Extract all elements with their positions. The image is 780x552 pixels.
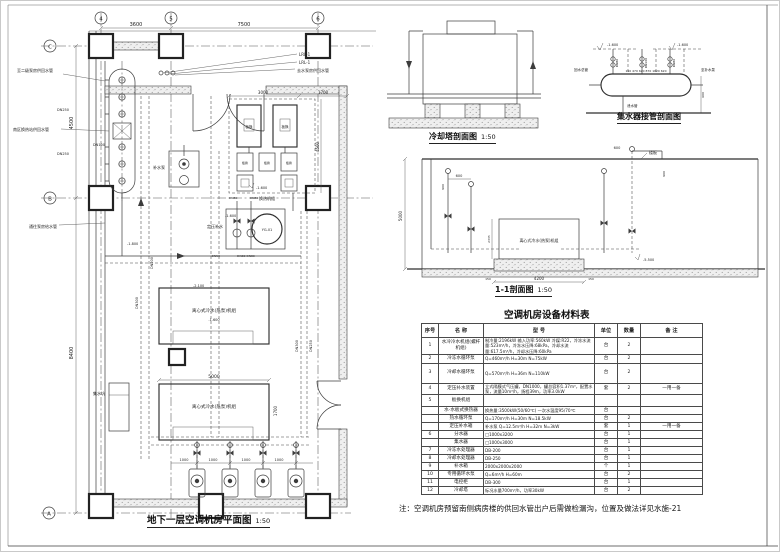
section-1-1: 5000 楼板 离心式冷水(热泵)机组 4200 150 150 600 900… bbox=[398, 146, 765, 284]
double-door-right bbox=[317, 381, 341, 429]
hx-label-2: 板换 bbox=[282, 124, 290, 129]
collector-title: 集水器接管剖面图 bbox=[617, 111, 681, 124]
cell-remark bbox=[641, 431, 703, 439]
cell-no: 1 bbox=[422, 338, 439, 355]
table-row: 集水器 □1000x3000 台 1 bbox=[422, 439, 703, 447]
cell-qty: 2 bbox=[618, 338, 641, 355]
table-row: 5 板换机组 bbox=[422, 395, 703, 407]
cell-unit: 台 bbox=[595, 447, 618, 455]
cell-model: 换热量:3500kW(50/60℃) 一次水温度95/70℃ bbox=[484, 407, 595, 415]
cell-qty: 1 bbox=[618, 463, 641, 471]
collector-right-label: 至补水泵 bbox=[701, 67, 715, 72]
table-row: 7 冷冻水处理器 DB-200 台 1 bbox=[422, 447, 703, 455]
collector-dim-row: 150 470 620 870 1620 620 bbox=[625, 69, 666, 73]
axis-bubble-5: 5 bbox=[169, 17, 173, 23]
sump-equipment: 集水坑 bbox=[93, 383, 129, 431]
col-header-qty: 数量 bbox=[618, 324, 641, 338]
elevation-c: -1.800 bbox=[127, 242, 138, 246]
cell-no bbox=[422, 423, 439, 431]
pump-spacing-dim-2: 1000 bbox=[242, 458, 251, 462]
slab-label: 楼板 bbox=[649, 149, 657, 155]
section-dim-4200: 4200 bbox=[534, 276, 545, 281]
cell-model: □1000x3200 bbox=[484, 431, 595, 439]
dn100-label: DN100 bbox=[93, 143, 105, 147]
cell-qty: 2 bbox=[618, 354, 641, 363]
cell-unit: 台 bbox=[595, 338, 618, 355]
cell-model: 立式隔膜式气压罐，DN1000，罐总容积1.37m³，配置水泵，流量10m³/h… bbox=[484, 383, 595, 395]
plan-title-scale: 1:50 bbox=[256, 517, 271, 525]
cell-model: DB-200 bbox=[484, 447, 595, 455]
cell-name: 定压补水箱 bbox=[439, 423, 484, 431]
cell-unit: 台 bbox=[595, 455, 618, 463]
cell-remark: 一用一备 bbox=[641, 423, 703, 431]
cell-unit: 台 bbox=[595, 415, 618, 423]
cell-name: 冷却塔 bbox=[439, 487, 484, 495]
cell-model: Q=570m³/h H=36m N=110kW bbox=[484, 363, 595, 383]
table-row: 12 冷却塔 标况水量700m³/h，功率30kW 台 2 bbox=[422, 487, 703, 495]
cell-name: 冷冻水循环泵 bbox=[439, 354, 484, 363]
cell-no: 6 bbox=[422, 431, 439, 439]
section-dim-150-left: 150 bbox=[485, 277, 491, 281]
cell-remark bbox=[641, 415, 703, 423]
collector-title-text: 集水器接管剖面图 bbox=[617, 112, 681, 121]
elevation-d: -2.100 bbox=[193, 284, 204, 288]
cell-remark: 一用一备 bbox=[641, 383, 703, 395]
plan-title-text: 地下一层空调机房平面图 bbox=[147, 515, 252, 526]
col-header-name: 名 称 bbox=[439, 324, 484, 338]
walls bbox=[89, 31, 376, 513]
dim-8400: 8400 bbox=[69, 347, 75, 360]
pump-spacing-dim-0: 1000 bbox=[180, 458, 189, 462]
cell-model: Q=6m³/h H=60m bbox=[484, 471, 595, 479]
cell-name: 专用循环水泵 bbox=[439, 471, 484, 479]
table-header-row: 序号 名 称 型 号 单位 数量 备 注 bbox=[422, 324, 703, 338]
section-1-1-title-scale: 1:50 bbox=[537, 286, 552, 294]
cell-no: 9 bbox=[422, 463, 439, 471]
pump-spacing-dim-3: 1000 bbox=[275, 458, 284, 462]
cell-qty: 2 bbox=[618, 471, 641, 479]
cell-no: 8 bbox=[422, 455, 439, 463]
cell-name: 定压补水装置 bbox=[439, 383, 484, 395]
table-row: 4 定压补水装置 立式隔膜式气压罐，DN1000，罐总容积1.37m³，配置水泵… bbox=[422, 383, 703, 395]
plan-title: 地下一层空调机房平面图1:50 bbox=[147, 512, 270, 528]
pipe-tag-lrl2: LRL-1 bbox=[299, 60, 311, 65]
cell-model: DB-250 bbox=[484, 455, 595, 463]
cell-name: 冷却水处理器 bbox=[439, 455, 484, 463]
section-elevation: -5.500 bbox=[643, 258, 654, 262]
cell-remark bbox=[641, 354, 703, 363]
col-header-remark: 备 注 bbox=[641, 324, 703, 338]
leader-label-left-mid: 南区换热站供回水管 bbox=[13, 126, 49, 132]
cell-no bbox=[422, 415, 439, 423]
dim-7500: 7500 bbox=[238, 22, 251, 28]
chiller-2: 离心式冷水(热泵)机组 5000 1700 bbox=[157, 374, 278, 440]
drawing-note: 注：空调机房预留南侧病房楼的供回水管出户后需做检漏沟，位置及做法详见水施-21 bbox=[399, 503, 681, 514]
cell-remark bbox=[641, 487, 703, 495]
section-dim-900-left: 900 bbox=[441, 184, 445, 190]
cell-qty: 2 bbox=[618, 415, 641, 423]
axis-bubble-6: 6 bbox=[316, 17, 320, 23]
cell-name: 电控柜 bbox=[439, 479, 484, 487]
cell-remark bbox=[641, 407, 703, 415]
table-row: 10 专用循环水泵 Q=6m³/h H=60m 台 2 bbox=[422, 471, 703, 479]
equipment-table: 序号 名 称 型 号 单位 数量 备 注 1 水冷冷水机组(螺杆机组) 制冷量:… bbox=[421, 323, 702, 495]
dim-4500-right: 4500 bbox=[315, 141, 320, 152]
section-dim-900-right: 900 bbox=[662, 171, 666, 177]
cooling-tower-title-text: 冷却塔剖面图 bbox=[429, 132, 477, 141]
section-dim-2335: 2335 bbox=[487, 235, 491, 243]
cell-unit: 台 bbox=[595, 354, 618, 363]
cell-qty: 2 bbox=[618, 363, 641, 383]
pump-row: 1000 1000 1000 1000 bbox=[171, 441, 313, 497]
cell-model: Q=170m³/h H=30m N=18.5kW bbox=[484, 415, 595, 423]
section-dim-150-right: 150 bbox=[588, 277, 594, 281]
section-1-1-title: 1-1剖面图1:50 bbox=[495, 284, 552, 297]
table-row: 水-水板式换热器 换热量:3500kW(50/60℃) 一次水温度95/70℃ … bbox=[422, 407, 703, 415]
sump-label: 集水坑 bbox=[93, 390, 105, 396]
cell-qty: 2 bbox=[618, 383, 641, 395]
table-body: 1 水冷冷水机组(螺杆机组) 制冷量:2196kW 输入功率:560kW 冷媒:… bbox=[422, 338, 703, 495]
double-door-top bbox=[193, 94, 264, 131]
cell-name: 冷冻水处理器 bbox=[439, 447, 484, 455]
cell-no: 11 bbox=[422, 479, 439, 487]
cell-qty bbox=[618, 395, 641, 407]
top-risers: LRL-1 LRL-1 去水泵房供回水管 bbox=[159, 52, 329, 75]
pump-station-label: 补水泵 bbox=[153, 164, 165, 170]
cooling-tower-title: 冷却塔剖面图1:50 bbox=[429, 131, 496, 144]
section-dim-600-left: 600 bbox=[456, 174, 463, 178]
collector-dim-600: 600 bbox=[701, 92, 705, 98]
cell-qty: 1 bbox=[618, 479, 641, 487]
cooling-tower-section bbox=[387, 21, 541, 128]
leader-label-left-top: 至二级泵房供回水管 bbox=[17, 67, 53, 73]
collector-left-label: 回水总管 bbox=[574, 67, 588, 72]
cell-unit: 个 bbox=[595, 463, 618, 471]
cell-remark bbox=[641, 338, 703, 355]
dim-3600: 3600 bbox=[130, 22, 143, 28]
cell-model: 补水泵 Q=12.5m³/h H=32m N=3kW bbox=[484, 423, 595, 431]
cell-model: 2000x2000x2000 bbox=[484, 463, 595, 471]
cell-model: Q=460m³/h H=30m N=75kW bbox=[484, 354, 595, 363]
chiller-2-label: 离心式冷水(热泵)机组 bbox=[192, 403, 237, 410]
cell-remark bbox=[641, 395, 703, 407]
cell-remark bbox=[641, 363, 703, 383]
pipe-tag-lrl1: LRL-1 bbox=[299, 52, 311, 57]
cell-remark bbox=[641, 463, 703, 471]
cooling-tower-title-scale: 1:50 bbox=[481, 133, 496, 141]
cell-model bbox=[484, 395, 595, 407]
cell-unit bbox=[595, 395, 618, 407]
cell-name: 分水器 bbox=[439, 431, 484, 439]
collector-drain-label: 泄水管 bbox=[627, 103, 638, 108]
table-row: 9 补水箱 2000x2000x2000 个 1 bbox=[422, 463, 703, 471]
leader-label-left-bottom: 通往泵房给水管 bbox=[29, 223, 57, 229]
pump-station: 补水泵 bbox=[153, 145, 199, 187]
dn250-label-2: DN250 bbox=[57, 152, 69, 156]
collector-section: -1.600 -1.600 DN80 DN100 DN80 回水总管 至补水泵 … bbox=[574, 43, 715, 113]
cell-model: □1000x3000 bbox=[484, 439, 595, 447]
col-header-unit: 单位 bbox=[595, 324, 618, 338]
cell-unit: 台 bbox=[595, 363, 618, 383]
cell-qty bbox=[618, 407, 641, 415]
cell-no: 2 bbox=[422, 354, 439, 363]
dn80-label-1: DN80 bbox=[229, 196, 237, 200]
section-dim-600-right: 600 bbox=[614, 146, 621, 150]
leader-label-top-right: 去水泵房供回水管 bbox=[297, 67, 329, 73]
collector-elevation-left: -1.600 bbox=[607, 43, 618, 47]
elevation-a: -1.600 bbox=[225, 214, 236, 218]
axis-bubble-a: A bbox=[47, 512, 51, 518]
axis-bubble-c: C bbox=[48, 45, 52, 51]
dim-3000: 3000 bbox=[258, 90, 269, 95]
cell-unit: 台 bbox=[595, 487, 618, 495]
cell-name: 冷却水循环泵 bbox=[439, 363, 484, 383]
cell-qty: 1 bbox=[618, 455, 641, 463]
table-row: 定压补水箱 补水泵 Q=12.5m³/h H=32m N=3kW 套 1 一用一… bbox=[422, 423, 703, 431]
floor-plan: 4 5 6 C B A 3600 7500 4500 8400 bbox=[13, 12, 376, 519]
chiller-1: 离心式冷水(热泵)机组 -1.600 bbox=[159, 288, 269, 344]
table-row: 11 电控柜 DB-300 台 1 bbox=[422, 479, 703, 487]
hx-unit-label: 换热机组 bbox=[259, 195, 275, 201]
cell-no: 7 bbox=[422, 447, 439, 455]
section-machine-label: 离心式冷水(热泵)机组 bbox=[519, 237, 558, 243]
cell-unit: 套 bbox=[595, 383, 618, 395]
section-dim-5000: 5000 bbox=[398, 210, 403, 221]
dim-1700-top: 1700 bbox=[318, 90, 329, 95]
cell-unit: 台 bbox=[595, 471, 618, 479]
dim-4500: 4500 bbox=[69, 117, 75, 130]
pump-spacing-dim-1: 1000 bbox=[209, 458, 218, 462]
piping: DN300 DN200 DN300 DN250 -1.600 -1.800 -2… bbox=[105, 96, 313, 469]
dn300-label-1: DN300 bbox=[135, 297, 139, 309]
table-row: 6 分水器 □1000x3200 台 1 bbox=[422, 431, 703, 439]
cell-remark bbox=[641, 471, 703, 479]
cell-no: 10 bbox=[422, 471, 439, 479]
drawing-sheet: 4 5 6 C B A 3600 7500 4500 8400 bbox=[0, 0, 780, 552]
cell-remark bbox=[641, 439, 703, 447]
platform-elevation: -1.600 bbox=[256, 186, 267, 190]
dim-1700-right: 1700 bbox=[273, 405, 278, 416]
equipment-table-title: 空调机房设备材料表 bbox=[504, 307, 590, 321]
cell-qty: 1 bbox=[618, 447, 641, 455]
hx-label-3: 板换 bbox=[242, 160, 248, 165]
dim-5000: 5000 bbox=[208, 374, 220, 380]
cell-no: 4 bbox=[422, 383, 439, 395]
cell-name: 板换机组 bbox=[439, 395, 484, 407]
cell-no: 5 bbox=[422, 395, 439, 407]
dn300-label-2: DN300 bbox=[295, 340, 299, 352]
cell-qty: 1 bbox=[618, 439, 641, 447]
table-row: 3 冷却水循环泵 Q=570m³/h H=36m N=110kW 台 2 bbox=[422, 363, 703, 383]
cell-model: DB-300 bbox=[484, 479, 595, 487]
dn250-label-3: DN250 bbox=[309, 340, 313, 352]
dn200-label: DN200 bbox=[150, 257, 154, 269]
cell-no bbox=[422, 439, 439, 447]
hx-label-4: 板换 bbox=[264, 160, 270, 165]
table-row: 8 冷却水处理器 DB-250 台 1 bbox=[422, 455, 703, 463]
dn250-label-1: DN250 bbox=[57, 108, 69, 112]
dn80-label-2: DN80 bbox=[250, 196, 258, 200]
hx-label-1: 板换 bbox=[246, 124, 253, 129]
collector-dn-2: DN100 bbox=[644, 58, 648, 68]
table-row: 热水循环泵 Q=170m³/h H=30m N=18.5kW 台 2 bbox=[422, 415, 703, 423]
cell-unit: 套 bbox=[595, 423, 618, 431]
cell-remark bbox=[641, 455, 703, 463]
cell-unit: 台 bbox=[595, 439, 618, 447]
pressure-tank-group: YG-01 DN80 DN80 DN80 DN80 DN50 定压补水 bbox=[207, 196, 285, 258]
cell-model: 标况水量700m³/h，功率30kW bbox=[484, 487, 595, 495]
cell-unit: 台 bbox=[595, 479, 618, 487]
hx-label-5: 板换 bbox=[286, 160, 292, 165]
cell-qty: 1 bbox=[618, 423, 641, 431]
table-row: 2 冷冻水循环泵 Q=460m³/h H=30m N=75kW 台 2 bbox=[422, 354, 703, 363]
cell-unit: 台 bbox=[595, 407, 618, 415]
pressure-tank-label: 定压补水 bbox=[207, 223, 223, 229]
cell-no: 12 bbox=[422, 487, 439, 495]
cell-qty: 2 bbox=[618, 487, 641, 495]
col-header-no: 序号 bbox=[422, 324, 439, 338]
hx-platform: 3000 1700 4500 板换 板换 板换 板换 板换 换热机组 -1.60… bbox=[227, 90, 349, 201]
cell-name: 热水循环泵 bbox=[439, 415, 484, 423]
cell-remark bbox=[641, 447, 703, 455]
pressure-tank-tag: YG-01 bbox=[262, 228, 273, 232]
collector-dn-1: DN80 bbox=[615, 59, 619, 67]
section-1-1-title-text: 1-1剖面图 bbox=[495, 285, 533, 294]
chiller-1-elevation: -1.600 bbox=[208, 318, 219, 322]
cell-model: 制冷量:2196kW 输入功率:560kW 冷媒:R22，冷冻水流量:523m³… bbox=[484, 338, 595, 355]
cell-remark bbox=[641, 479, 703, 487]
cell-name: 水冷冷水机组(螺杆机组) bbox=[439, 338, 484, 355]
cell-qty: 1 bbox=[618, 431, 641, 439]
table-row: 1 水冷冷水机组(螺杆机组) 制冷量:2196kW 输入功率:560kW 冷媒:… bbox=[422, 338, 703, 355]
cell-no bbox=[422, 407, 439, 415]
chiller-1-label: 离心式冷水(热泵)机组 bbox=[192, 307, 237, 314]
cell-no: 3 bbox=[422, 363, 439, 383]
cell-name: 集水器 bbox=[439, 439, 484, 447]
collector-dn-3: DN80 bbox=[672, 59, 676, 67]
col-header-model: 型 号 bbox=[484, 324, 595, 338]
axis-bubble-b: B bbox=[48, 197, 52, 203]
collector-elevation-right: -1.600 bbox=[677, 43, 688, 47]
axis-bubble-4: 4 bbox=[99, 17, 103, 23]
cell-name: 水-水板式换热器 bbox=[439, 407, 484, 415]
cell-name: 补水箱 bbox=[439, 463, 484, 471]
cell-unit: 台 bbox=[595, 431, 618, 439]
